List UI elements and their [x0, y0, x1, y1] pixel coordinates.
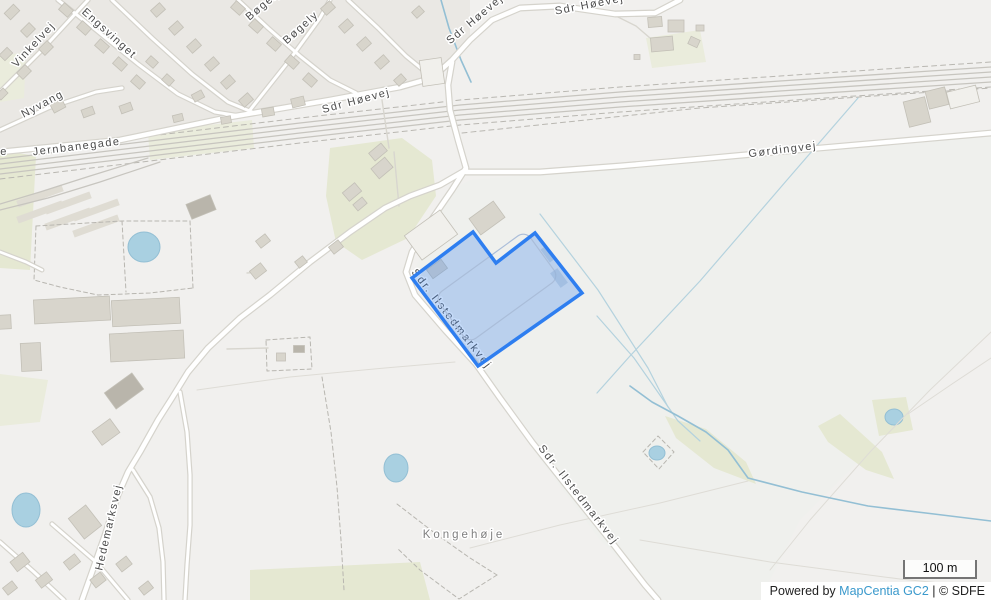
building	[277, 353, 286, 361]
building	[419, 58, 444, 87]
pond	[128, 232, 160, 262]
building	[648, 16, 663, 27]
building	[111, 297, 180, 327]
pond	[384, 454, 408, 482]
scale-bar-label: 100 m	[923, 561, 958, 575]
pond	[12, 493, 40, 527]
scale-bar: 100 m	[903, 560, 977, 579]
building	[668, 20, 684, 32]
building	[220, 116, 231, 125]
building	[696, 25, 704, 31]
building	[650, 36, 673, 52]
pond	[885, 409, 903, 425]
map-viewport: Sdr. IlstedmarkvejVinkelvejEngsvingetNyv…	[0, 0, 991, 600]
building	[294, 346, 305, 353]
attribution-bar: Powered by MapCentia GC2 | © SDFE	[761, 582, 991, 600]
building	[0, 315, 11, 330]
pond	[649, 446, 665, 460]
label-street-cut: e	[0, 146, 8, 158]
building	[109, 330, 184, 362]
label-kongehoeje: Kongehøje	[423, 529, 506, 541]
building	[634, 55, 640, 60]
building	[20, 342, 41, 371]
attribution-prefix: Powered by	[770, 584, 839, 598]
building	[261, 107, 274, 117]
driveway	[227, 348, 268, 349]
attribution-suffix: | © SDFE	[929, 584, 985, 598]
building	[33, 296, 110, 324]
map-canvas[interactable]: Sdr. IlstedmarkvejVinkelvejEngsvingetNyv…	[0, 0, 991, 600]
mapcentia-link[interactable]: MapCentia GC2	[839, 584, 929, 598]
